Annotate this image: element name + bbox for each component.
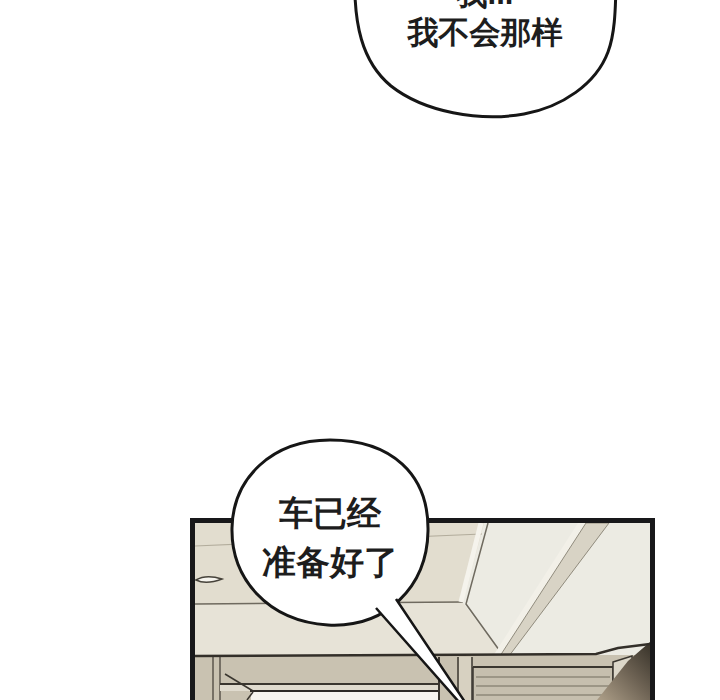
doorway-opening	[251, 692, 438, 700]
comic-page: 我... 我不会那样 车已经 准备好了	[0, 0, 720, 700]
bottom-bubble-text: 车已经 准备好了	[230, 489, 430, 587]
speech-line: 我不会那样	[335, 13, 635, 52]
comic-art	[0, 0, 720, 700]
speech-line: 车已经	[230, 489, 430, 538]
divider-highlight	[459, 657, 472, 700]
speech-line: 准备好了	[230, 538, 430, 587]
top-bubble-text: 我... 我不会那样	[335, 0, 635, 52]
speech-line: 我...	[335, 0, 635, 13]
